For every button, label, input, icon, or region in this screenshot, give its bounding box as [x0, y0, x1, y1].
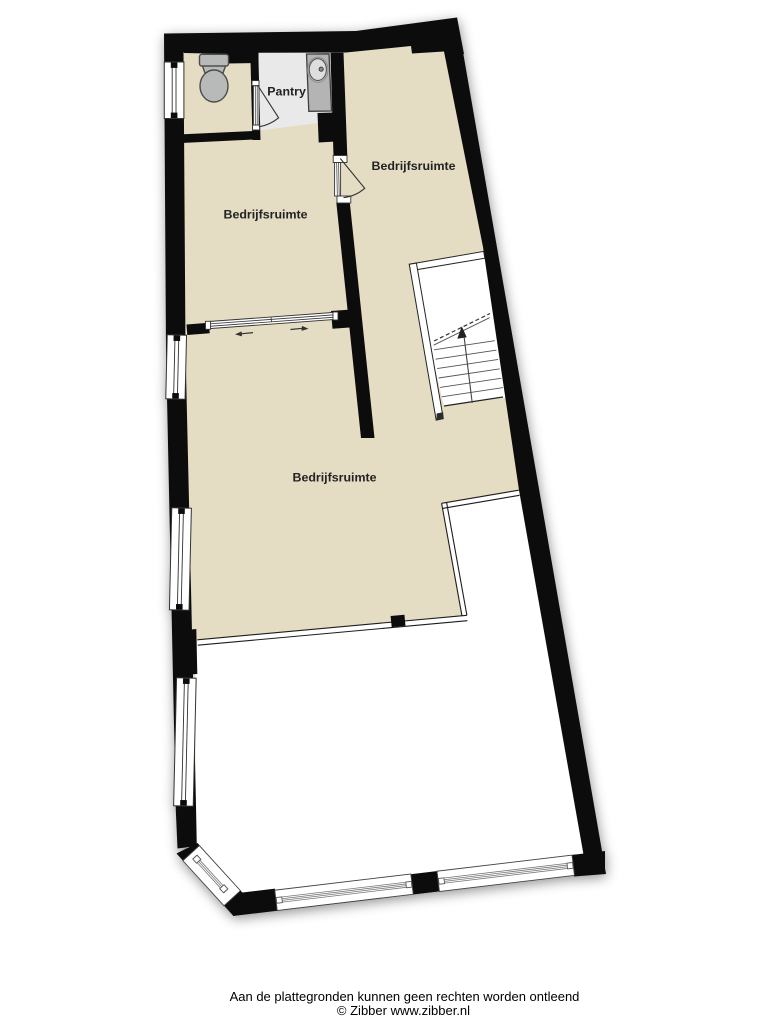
- svg-text:Bedrijfsruimte: Bedrijfsruimte: [224, 208, 308, 222]
- svg-text:Bedrijfsruimte: Bedrijfsruimte: [372, 159, 456, 173]
- svg-text:Pantry: Pantry: [267, 85, 306, 99]
- svg-text:Bedrijfsruimte: Bedrijfsruimte: [293, 471, 377, 485]
